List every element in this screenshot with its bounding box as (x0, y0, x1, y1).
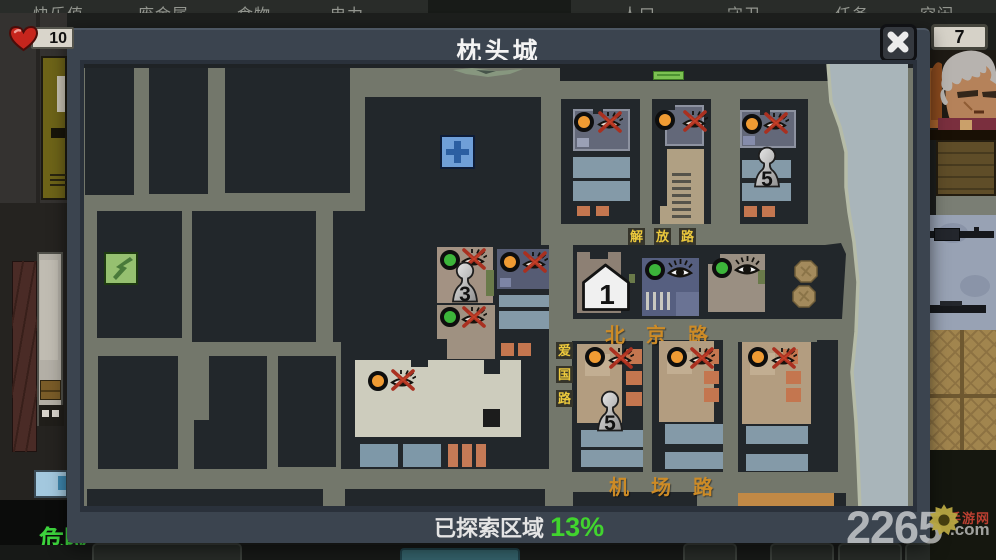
svg-text:5: 5 (604, 412, 616, 433)
svg-text:5: 5 (761, 168, 773, 189)
svg-text:3: 3 (459, 283, 471, 304)
svg-text:1: 1 (599, 279, 615, 310)
